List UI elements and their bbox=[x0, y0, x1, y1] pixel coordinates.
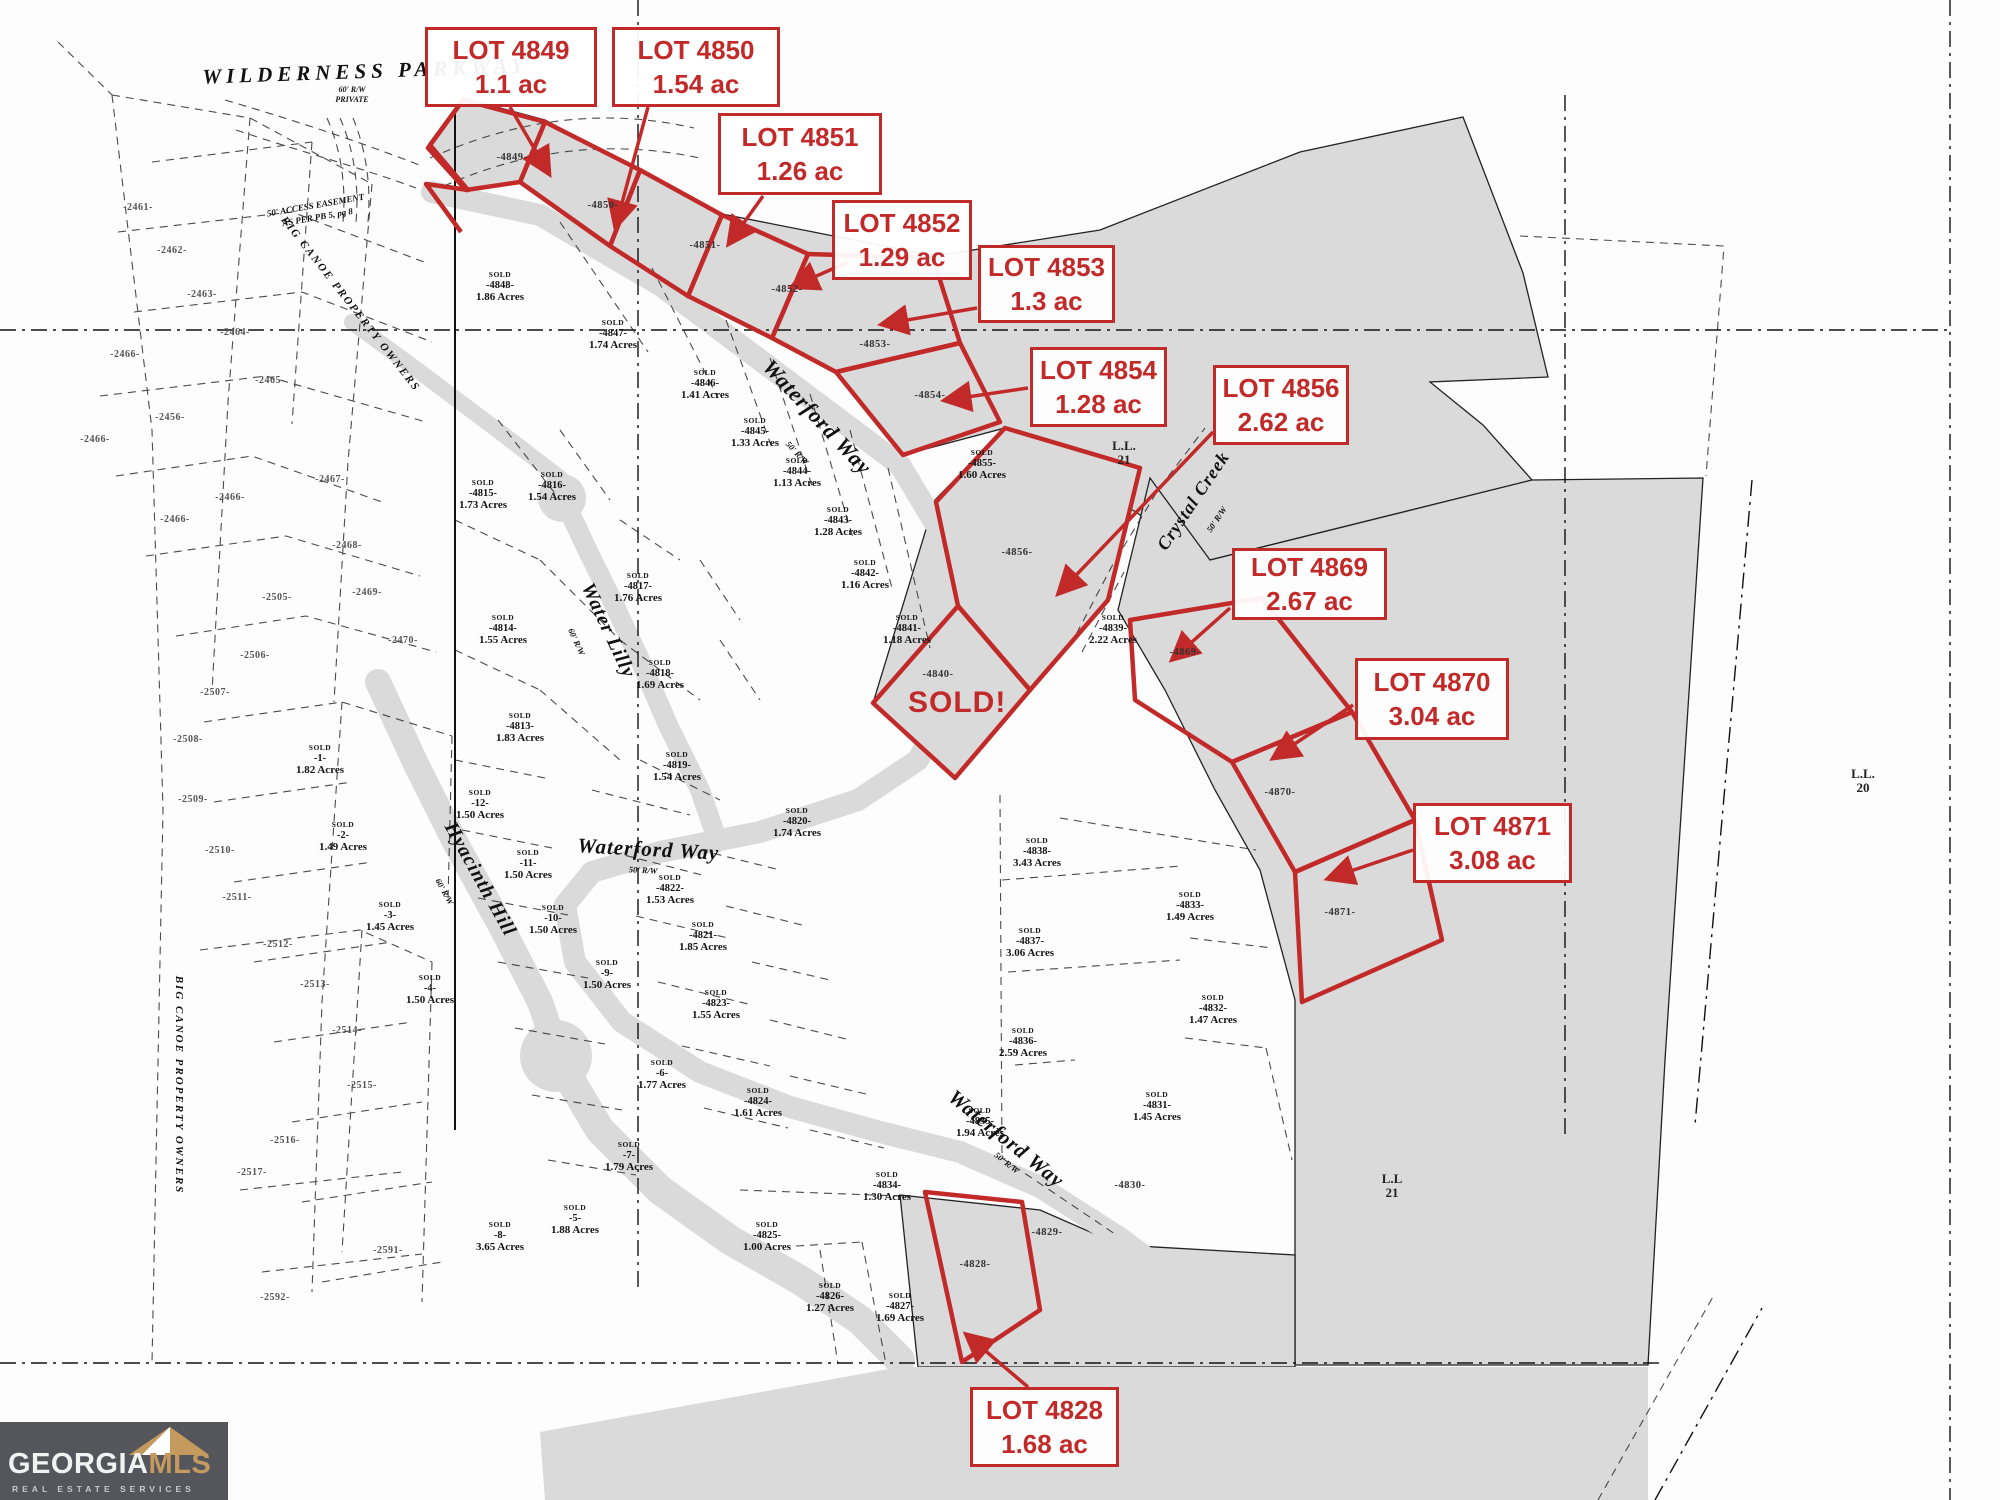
lot-callout-4853: LOT 4853 1.3 ac bbox=[978, 245, 1115, 323]
callout-lot: LOT 4869 bbox=[1251, 550, 1368, 584]
outparcel-label: -2515- bbox=[347, 1080, 377, 1091]
outparcel-label: -2516- bbox=[270, 1135, 300, 1146]
parcel-label: SOLD-4843-1.28 Acres bbox=[814, 505, 863, 538]
callout-lot: LOT 4871 bbox=[1434, 809, 1551, 843]
callout-area: 1.29 ac bbox=[859, 240, 946, 274]
callout-lot: LOT 4852 bbox=[843, 206, 960, 240]
lot-callout-4871: LOT 4871 3.08 ac bbox=[1413, 803, 1572, 883]
gray-lot-label: -4854- bbox=[915, 390, 946, 401]
callout-area: 3.04 ac bbox=[1389, 699, 1476, 733]
callout-area: 1.68 ac bbox=[1001, 1427, 1088, 1461]
parcel-label: SOLD-4837-3.06 Acres bbox=[1006, 926, 1055, 959]
outparcel-label: -2506- bbox=[240, 650, 270, 661]
outparcel-label: -2507- bbox=[200, 687, 230, 698]
outparcel-label: -2592- bbox=[260, 1292, 290, 1303]
outparcel-label: -2469- bbox=[352, 587, 382, 598]
street-label: PRIVATE bbox=[335, 95, 368, 104]
landlot-label: L.L.20 bbox=[1851, 766, 1875, 795]
outparcel-label: -2468- bbox=[332, 540, 362, 551]
parcel-label: SOLD-3-1.45 Acres bbox=[366, 900, 415, 933]
parcel-label: SOLD-4838-3.43 Acres bbox=[1013, 836, 1062, 869]
outparcel-label: -2505- bbox=[262, 592, 292, 603]
logo-wordmark: GEORGIAMLS bbox=[8, 1450, 211, 1479]
parcel-label: SOLD-4-1.50 Acres bbox=[406, 973, 455, 1006]
lot-callout-4854: LOT 4854 1.28 ac bbox=[1030, 347, 1167, 427]
parcel-label: SOLD-4847-1.74 Acres bbox=[589, 318, 638, 351]
outparcel-label: -2511- bbox=[222, 892, 251, 903]
callout-lot: LOT 4854 bbox=[1040, 353, 1157, 387]
callout-lot: LOT 4870 bbox=[1373, 665, 1490, 699]
lot-callout-4828: LOT 4828 1.68 ac bbox=[970, 1387, 1119, 1467]
lot-callout-4850: LOT 4850 1.54 ac bbox=[612, 27, 780, 107]
parcel-label: SOLD-4817-1.76 Acres bbox=[614, 571, 663, 604]
lot-callout-4851: LOT 4851 1.26 ac bbox=[718, 113, 882, 195]
outparcel-label: -2466- bbox=[110, 349, 140, 360]
georgia-mls-logo: GEORGIAMLS REAL ESTATE SERVICES bbox=[0, 1422, 228, 1500]
plat-map: -2461--2462--2463--2464--2465--2466--246… bbox=[0, 0, 2000, 1500]
parcel-label: SOLD-4822-1.53 Acres bbox=[646, 873, 695, 906]
street-label: 60' R/W bbox=[339, 85, 367, 94]
gray-lot-label: -4850- bbox=[588, 200, 619, 211]
gray-lot-label: -4870- bbox=[1265, 787, 1296, 798]
parcel-label: SOLD-4836-2.59 Acres bbox=[999, 1026, 1048, 1059]
parcel-label: SOLD-4844-1.13 Acres bbox=[773, 456, 822, 489]
plat-map-stage: -2461--2462--2463--2464--2465--2466--246… bbox=[0, 0, 2000, 1500]
parcel-label: SOLD-8-3.65 Acres bbox=[476, 1220, 525, 1253]
outparcel-label: -2462- bbox=[157, 245, 187, 256]
callout-lot: LOT 4856 bbox=[1222, 371, 1339, 405]
outparcel-label: -2470- bbox=[388, 635, 418, 646]
gray-lot-label: -4828- bbox=[960, 1259, 991, 1270]
outparcel-label: -2509- bbox=[178, 794, 208, 805]
parcel-label: SOLD-4823-1.55 Acres bbox=[692, 988, 741, 1021]
outparcel-label: -2517- bbox=[237, 1167, 267, 1178]
callout-lot: LOT 4853 bbox=[988, 250, 1105, 284]
parcel-label: SOLD-4813-1.83 Acres bbox=[496, 711, 545, 744]
gray-lot-label: -4851- bbox=[690, 240, 721, 251]
gray-lot-label: -4829- bbox=[1032, 1227, 1063, 1238]
outparcel-label: -2466- bbox=[80, 434, 110, 445]
gray-lot-label: -4871- bbox=[1325, 907, 1356, 918]
gray-lot-label: -4849- bbox=[497, 152, 528, 163]
outparcel-label: -2513- bbox=[300, 979, 330, 990]
parcel-label: SOLD-4845-1.33 Acres bbox=[731, 416, 780, 449]
callout-area: 2.67 ac bbox=[1266, 584, 1353, 618]
lot-callout-4856: LOT 4856 2.62 ac bbox=[1213, 365, 1349, 445]
lot-callout-4852: LOT 4852 1.29 ac bbox=[832, 200, 972, 280]
parcel-label: SOLD-4815-1.73 Acres bbox=[459, 478, 508, 511]
parcel-label: SOLD-2-1.49 Acres bbox=[319, 820, 368, 853]
callout-area: 1.28 ac bbox=[1055, 387, 1142, 421]
parcel-label: SOLD-4834-1.30 Acres bbox=[863, 1170, 912, 1203]
parcel-label: SOLD-5-1.88 Acres bbox=[551, 1203, 600, 1236]
parcel-label: SOLD-4848-1.86 Acres bbox=[476, 270, 525, 303]
lot-callout-4869: LOT 4869 2.67 ac bbox=[1232, 548, 1387, 620]
callout-area: 1.3 ac bbox=[1010, 284, 1082, 318]
gray-lot-label: -4856- bbox=[1002, 547, 1033, 558]
outparcel-label: -2466- bbox=[160, 514, 190, 525]
parcel-label: SOLD-4814-1.55 Acres bbox=[479, 613, 528, 646]
outparcel-label: -2463- bbox=[187, 289, 217, 300]
gray-lot-label: -4852- bbox=[772, 284, 803, 295]
parcel-label: SOLD-4846-1.41 Acres bbox=[681, 368, 730, 401]
callout-lot: LOT 4850 bbox=[637, 33, 754, 67]
outparcel-label: -2512- bbox=[263, 939, 293, 950]
callout-lot: LOT 4851 bbox=[741, 120, 858, 154]
outparcel-label: -2510- bbox=[205, 845, 235, 856]
callout-area: 2.62 ac bbox=[1238, 405, 1325, 439]
outparcel-label: -2464- bbox=[220, 327, 250, 338]
outparcel-label: -2466- bbox=[215, 492, 245, 503]
outparcel-label: -2508- bbox=[173, 734, 203, 745]
street-label: 50' R/W bbox=[629, 864, 659, 876]
street-label: BIG CANOE PROPERTY OWNERS bbox=[173, 975, 185, 1195]
parcel-label: SOLD-11-1.50 Acres bbox=[504, 848, 553, 881]
lot-callout-4849: LOT 4849 1.1 ac bbox=[425, 27, 597, 107]
callout-area: 3.08 ac bbox=[1449, 843, 1536, 877]
outparcel-label: -2467- bbox=[315, 474, 345, 485]
outparcel-label: -2465- bbox=[255, 375, 285, 386]
callout-area: 1.26 ac bbox=[757, 154, 844, 188]
outparcel-label: -2591- bbox=[373, 1245, 403, 1256]
parcel-label: SOLD-4832-1.47 Acres bbox=[1189, 993, 1238, 1026]
callout-lot: LOT 4828 bbox=[986, 1393, 1103, 1427]
logo-mls: MLS bbox=[148, 1448, 211, 1480]
parcel-label: SOLD-4831-1.45 Acres bbox=[1133, 1090, 1182, 1123]
gray-lot-label: -4840- bbox=[923, 669, 954, 680]
street-label: BIG CANOE PROPERTY OWNERS bbox=[278, 214, 423, 394]
gray-lot-label: -4869- bbox=[1170, 647, 1201, 658]
callout-area: 1.54 ac bbox=[653, 67, 740, 101]
outparcel-label: -2456- bbox=[155, 412, 185, 423]
callout-lot: LOT 4849 bbox=[452, 33, 569, 67]
logo-tagline: REAL ESTATE SERVICES bbox=[12, 1484, 195, 1494]
parcel-label: SOLD-4833-1.49 Acres bbox=[1166, 890, 1215, 923]
parcel-label: SOLD-1-1.82 Acres bbox=[296, 743, 345, 776]
gray-lot-label: -4830- bbox=[1115, 1180, 1146, 1191]
callout-area: 1.1 ac bbox=[475, 67, 547, 101]
outparcel-label: -2461- bbox=[123, 202, 153, 213]
logo-georgia: GEORGIA bbox=[8, 1448, 148, 1480]
street-label: 60' R/W bbox=[566, 627, 588, 658]
outparcel-label: -2514- bbox=[332, 1025, 362, 1036]
street-label: 60' R/W bbox=[433, 877, 456, 908]
lot-callout-4870: LOT 4870 3.04 ac bbox=[1355, 658, 1509, 740]
parcel-label: SOLD-12-1.50 Acres bbox=[456, 788, 505, 821]
gray-lot-label: -4853- bbox=[860, 339, 891, 350]
parcel-label: SOLD-4842-1.16 Acres bbox=[841, 558, 890, 591]
sold-overlay-label: SOLD! bbox=[908, 686, 1006, 720]
